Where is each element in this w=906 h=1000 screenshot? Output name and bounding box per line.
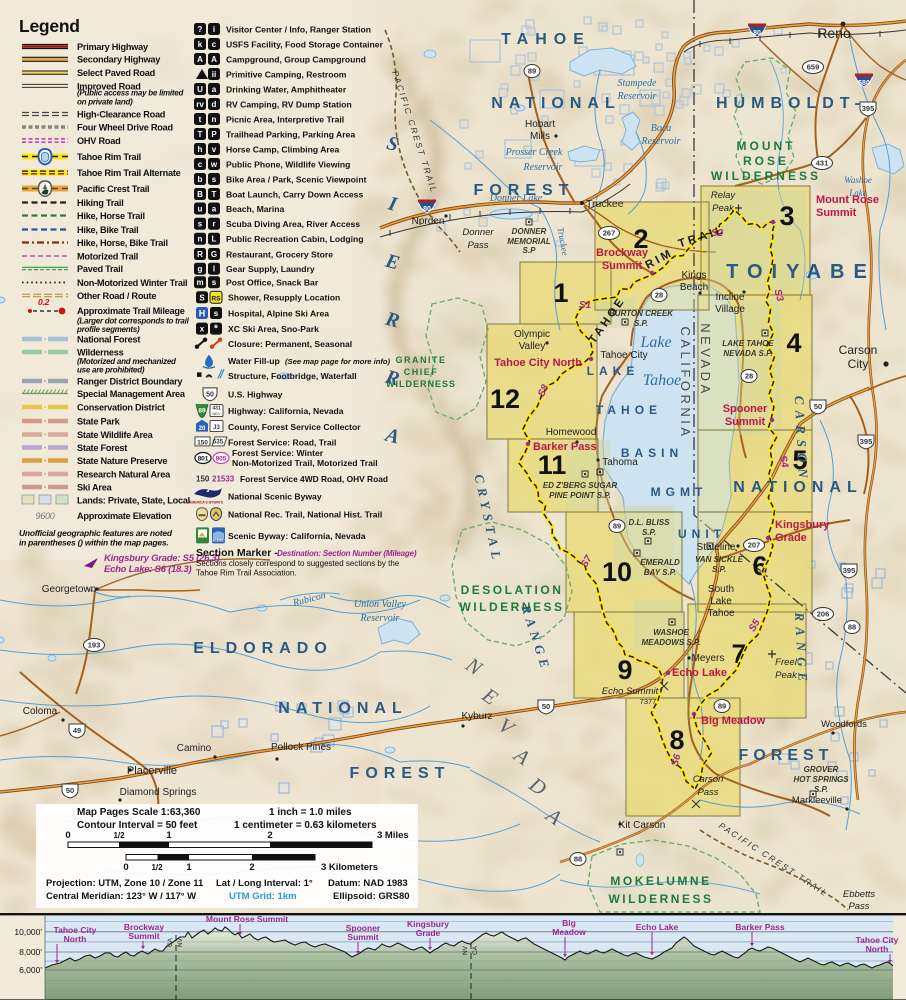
- svg-text:r: r: [212, 220, 215, 229]
- svg-text:(Public access may be limited: (Public access may be limited: [77, 89, 184, 98]
- svg-text:20: 20: [199, 426, 206, 432]
- svg-text:Tahoe City North: Tahoe City North: [494, 357, 582, 369]
- svg-text:k: k: [198, 40, 203, 49]
- svg-text:Structure, Footbridge, Waterfa: Structure, Footbridge, Waterfall: [228, 371, 357, 381]
- svg-text:1: 1: [166, 830, 172, 841]
- svg-text:Barker Pass: Barker Pass: [533, 441, 597, 453]
- svg-text:T: T: [212, 190, 217, 199]
- svg-text:G: G: [211, 250, 217, 259]
- svg-text:Grade: Grade: [775, 532, 807, 544]
- svg-text:g: g: [198, 265, 203, 274]
- svg-text:Secondary Highway: Secondary Highway: [77, 55, 161, 65]
- svg-text:Lake: Lake: [710, 596, 732, 607]
- svg-text:S.P.: S.P.: [712, 565, 726, 574]
- svg-text:Shower, Resupply Location: Shower, Resupply Location: [228, 293, 340, 303]
- svg-text:s: s: [212, 278, 217, 287]
- svg-text:NATIONAL: NATIONAL: [491, 95, 620, 112]
- svg-text:NEVADA: NEVADA: [698, 323, 713, 397]
- svg-text:Meyers: Meyers: [692, 653, 725, 664]
- svg-text:Other Road / Route: Other Road / Route: [77, 291, 156, 301]
- svg-text:11: 11: [538, 450, 567, 480]
- svg-text:s: s: [214, 309, 219, 318]
- svg-text:Truckee: Truckee: [586, 198, 624, 210]
- svg-text:Legend: Legend: [19, 16, 80, 36]
- svg-text:Reservoir: Reservoir: [617, 91, 657, 102]
- svg-text:Carson: Carson: [693, 774, 724, 785]
- svg-text:MEADOWS S.P.: MEADOWS S.P.: [642, 638, 701, 647]
- svg-text:3 Kilometers: 3 Kilometers: [321, 862, 378, 873]
- svg-text:Map Pages Scale 1:63,360: Map Pages Scale 1:63,360: [77, 807, 201, 818]
- svg-text:89: 89: [613, 522, 621, 531]
- svg-text:Hike, Horse Trail: Hike, Horse Trail: [77, 211, 145, 221]
- svg-text:h: h: [198, 145, 203, 154]
- svg-text:Approximate Elevation: Approximate Elevation: [77, 511, 172, 521]
- svg-text:801: 801: [198, 456, 209, 463]
- svg-text:BAY S.P.: BAY S.P.: [644, 568, 676, 577]
- svg-text:NEVADA S.P.: NEVADA S.P.: [723, 349, 772, 358]
- svg-text:x: x: [200, 325, 205, 334]
- svg-text:State Park: State Park: [77, 416, 121, 426]
- svg-text:WILDERNESS: WILDERNESS: [459, 600, 564, 614]
- svg-text:HUMBOLDT-: HUMBOLDT-: [716, 95, 866, 112]
- svg-text:89: 89: [528, 67, 536, 76]
- svg-text:Highway: California, Nevada: Highway: California, Nevada: [228, 406, 344, 416]
- svg-text:RV Camping, RV Dump Station: RV Camping, RV Dump Station: [226, 99, 352, 109]
- svg-text:s: s: [212, 175, 217, 184]
- svg-text:North: North: [64, 934, 87, 944]
- svg-text:Peak: Peak: [775, 670, 798, 681]
- svg-text:Meadow: Meadow: [552, 927, 586, 937]
- svg-text:Pollock Pines: Pollock Pines: [271, 742, 331, 753]
- svg-text:in parentheses () within the m: in parentheses () within the map pages.: [19, 538, 168, 548]
- svg-text:Hike, Horse, Bike Trail: Hike, Horse, Bike Trail: [77, 238, 168, 248]
- svg-text:Unofficial geographic features: Unofficial geographic features are noted: [19, 528, 173, 538]
- svg-text:d: d: [212, 100, 217, 109]
- svg-text:Datum: NAD 1983: Datum: NAD 1983: [328, 878, 408, 889]
- svg-text:Camino: Camino: [177, 743, 212, 754]
- svg-text:267: 267: [603, 229, 616, 238]
- svg-text:City: City: [848, 357, 869, 371]
- svg-text:Water Fill-up: Water Fill-up: [228, 356, 280, 366]
- svg-text:PINE POINT S.P.: PINE POINT S.P.: [549, 491, 611, 500]
- svg-text:Projection: UTM, Zone 10 / Zon: Projection: UTM, Zone 10 / Zone 11: [46, 878, 204, 889]
- svg-text:High-Clearance Road: High-Clearance Road: [77, 109, 165, 119]
- svg-text:B: B: [197, 190, 203, 199]
- svg-text:Forest Service 4WD Road, OHV R: Forest Service 4WD Road, OHV Road: [240, 474, 388, 484]
- svg-text:State Nature Preserve: State Nature Preserve: [77, 456, 167, 466]
- svg-text:Hospital, Alpine Ski Area: Hospital, Alpine Ski Area: [228, 308, 329, 318]
- svg-text:Summit: Summit: [128, 931, 159, 941]
- svg-text:Four Wheel Drive Road: Four Wheel Drive Road: [77, 122, 173, 132]
- svg-text:H: H: [199, 309, 206, 319]
- svg-text:Summit: Summit: [816, 207, 857, 219]
- svg-text:Freel: Freel: [775, 657, 798, 668]
- svg-text:Forest Service: Road, Trail: Forest Service: Road, Trail: [228, 437, 336, 447]
- svg-text:National Rec. Trail, National: National Rec. Trail, National Hist. Trai…: [228, 510, 382, 520]
- svg-text:4: 4: [786, 328, 801, 358]
- svg-text:Bike Area / Park, Scenic Viewp: Bike Area / Park, Scenic Viewpoint: [226, 174, 367, 184]
- svg-text:a: a: [212, 85, 217, 94]
- svg-text:North: North: [866, 944, 889, 954]
- svg-text:S.P.: S.P.: [814, 785, 828, 794]
- svg-text:Markleeville: Markleeville: [792, 795, 842, 806]
- svg-text:Motorized Trail: Motorized Trail: [77, 251, 138, 261]
- svg-text:Hike, Bike Trail: Hike, Bike Trail: [77, 225, 138, 235]
- svg-text:A: A: [211, 55, 217, 64]
- svg-text:Prosser Creek: Prosser Creek: [505, 147, 563, 158]
- svg-text:Stampede: Stampede: [618, 78, 657, 89]
- svg-text:A: A: [197, 55, 203, 64]
- svg-text:Destination: Section Number (M: Destination: Section Number (Mileage): [277, 549, 417, 558]
- svg-text:Coloma: Coloma: [23, 706, 58, 717]
- svg-text:Primitive Camping, Restroom: Primitive Camping, Restroom: [226, 69, 347, 79]
- svg-text:Echo Lake: S6 (18.3): Echo Lake: S6 (18.3): [104, 564, 191, 575]
- svg-text:ELDORADO: ELDORADO: [193, 640, 333, 657]
- svg-text:Kingsbury: Kingsbury: [775, 519, 830, 531]
- svg-text:Gear Supply, Laundry: Gear Supply, Laundry: [226, 264, 315, 274]
- svg-text:7377: 7377: [640, 697, 657, 706]
- svg-text:Scenic Byway: California, Neva: Scenic Byway: California, Nevada: [228, 531, 366, 541]
- svg-text:Washoe: Washoe: [844, 175, 872, 185]
- svg-text:LAKE: LAKE: [587, 364, 640, 378]
- svg-text:Visitor Center / Info, Ranger: Visitor Center / Info, Ranger Station: [226, 24, 371, 34]
- svg-text:Grade: Grade: [416, 928, 441, 938]
- svg-text:Union Valley: Union Valley: [354, 599, 406, 610]
- svg-text:0.2: 0.2: [38, 297, 50, 307]
- svg-text:805: 805: [216, 456, 227, 463]
- svg-text:Pass: Pass: [467, 240, 488, 251]
- svg-text:National Scenic Byway: National Scenic Byway: [228, 491, 322, 501]
- svg-text:t: t: [199, 115, 202, 124]
- svg-text:Georgetown: Georgetown: [42, 584, 96, 595]
- svg-text:8,000': 8,000': [19, 947, 42, 957]
- svg-text:Paved Trail: Paved Trail: [77, 264, 123, 274]
- svg-text:Beach, Marina: Beach, Marina: [226, 204, 284, 214]
- svg-text:12: 12: [490, 384, 520, 414]
- svg-text:Reno: Reno: [817, 25, 851, 41]
- svg-text:Kyburz: Kyburz: [461, 711, 492, 722]
- svg-text:Lat / Long Interval: 1°: Lat / Long Interval: 1°: [216, 878, 313, 889]
- svg-text:v: v: [212, 145, 217, 154]
- svg-text:AMERICA’S BYWAYS: AMERICA’S BYWAYS: [189, 501, 224, 505]
- svg-text:Reservoir: Reservoir: [360, 613, 400, 624]
- svg-text:Donner Lake: Donner Lake: [489, 193, 543, 204]
- svg-text:1/2: 1/2: [113, 831, 125, 840]
- svg-text:WASHOE: WASHOE: [653, 628, 689, 637]
- svg-text:Mills: Mills: [530, 131, 550, 142]
- svg-text:J3: J3: [213, 425, 220, 431]
- svg-text:Forest Service: Winter: Forest Service: Winter: [232, 448, 324, 458]
- svg-text:BURTON CREEK: BURTON CREEK: [609, 309, 674, 318]
- svg-text:ii: ii: [212, 70, 216, 79]
- svg-text:Public Phone, Wildlife Viewing: Public Phone, Wildlife Viewing: [226, 159, 350, 169]
- svg-text:88: 88: [848, 623, 856, 632]
- svg-text:Scuba Diving Area, River Acces: Scuba Diving Area, River Access: [226, 219, 360, 229]
- svg-text:2: 2: [267, 830, 272, 841]
- svg-text:n: n: [212, 115, 217, 124]
- svg-text:S: S: [199, 293, 205, 302]
- svg-text:50: 50: [542, 702, 550, 711]
- svg-text:U.S. Highway: U.S. Highway: [228, 389, 283, 399]
- svg-text:ED Z'BERG SUGAR: ED Z'BERG SUGAR: [543, 481, 618, 490]
- svg-text:n: n: [198, 235, 203, 244]
- svg-text:TOIYABE: TOIYABE: [726, 261, 876, 283]
- svg-text:TAHOE: TAHOE: [596, 403, 662, 417]
- svg-text:Village: Village: [715, 304, 745, 315]
- svg-text:1/2: 1/2: [151, 863, 163, 872]
- svg-text:3: 3: [779, 201, 794, 231]
- svg-text:Big Meadow: Big Meadow: [701, 715, 766, 727]
- svg-text:National Forest: National Forest: [77, 334, 140, 344]
- svg-text:County, Forest Service Collect: County, Forest Service Collector: [228, 422, 361, 432]
- svg-text:3 Miles: 3 Miles: [377, 830, 409, 841]
- svg-text:Tahoma: Tahoma: [602, 457, 638, 468]
- svg-text:Lands: Private, State, Local: Lands: Private, State, Local: [77, 496, 190, 506]
- svg-text:s: s: [198, 220, 203, 229]
- svg-text:Mount Rose: Mount Rose: [816, 194, 879, 206]
- svg-text:RS: RS: [211, 295, 221, 302]
- svg-text:395: 395: [843, 566, 856, 575]
- svg-text:WILDERNESS: WILDERNESS: [711, 169, 821, 183]
- svg-text:rv: rv: [196, 100, 204, 109]
- svg-text:Spooner: Spooner: [723, 403, 768, 415]
- svg-text:Primary Highway: Primary Highway: [77, 42, 149, 52]
- svg-text:Brockway: Brockway: [596, 247, 649, 259]
- svg-text:State Forest: State Forest: [77, 443, 127, 453]
- svg-text:Hobart: Hobart: [525, 119, 555, 130]
- svg-text:LAKE TAHOE: LAKE TAHOE: [722, 339, 774, 348]
- svg-text:Pass: Pass: [697, 787, 718, 798]
- svg-text:L: L: [212, 235, 217, 244]
- svg-text:Picnic Area, Interpretive Trai: Picnic Area, Interpretive Trail: [226, 114, 344, 124]
- svg-text:Summit: Summit: [725, 416, 766, 428]
- svg-text:Summit: Summit: [347, 932, 378, 942]
- svg-text:Kings: Kings: [681, 270, 706, 281]
- svg-text:Placerville: Placerville: [127, 765, 177, 777]
- svg-text:89: 89: [718, 702, 726, 711]
- svg-text:S.P.: S.P.: [634, 319, 648, 328]
- svg-text:Contour Interval = 50 feet: Contour Interval = 50 feet: [77, 820, 198, 831]
- svg-text:Stateline: Stateline: [697, 542, 736, 553]
- svg-text:0: 0: [65, 830, 70, 841]
- svg-text:NEV: NEV: [212, 411, 221, 416]
- svg-text:UTM Grid: 1km: UTM Grid: 1km: [229, 891, 297, 902]
- svg-text:S1: S1: [579, 300, 592, 311]
- svg-text:Barker Pass: Barker Pass: [735, 922, 784, 932]
- svg-text:1 inch = 1.0 miles: 1 inch = 1.0 miles: [269, 807, 352, 818]
- svg-text:Diamond Springs: Diamond Springs: [120, 787, 197, 798]
- svg-text:Non-Motorized Winter Trail: Non-Motorized Winter Trail: [77, 278, 187, 288]
- svg-text:Kit Carson: Kit Carson: [619, 820, 666, 831]
- svg-text:Public Recreation Cabin, Lodgi: Public Recreation Cabin, Lodging: [226, 234, 364, 244]
- svg-text:Hiking Trail: Hiking Trail: [77, 198, 124, 208]
- svg-text:395: 395: [860, 437, 873, 446]
- svg-text:Trailhead Parking, Parking Are: Trailhead Parking, Parking Area: [226, 129, 355, 139]
- svg-text:c: c: [198, 160, 203, 169]
- svg-text:431: 431: [816, 159, 829, 168]
- svg-text:Beach: Beach: [680, 282, 708, 293]
- svg-text:S.P: S.P: [523, 246, 537, 255]
- svg-text:Restaurant, Grocery Store: Restaurant, Grocery Store: [226, 249, 333, 259]
- svg-text:193: 193: [88, 641, 101, 650]
- svg-text:6,000': 6,000': [19, 965, 42, 975]
- svg-text:T: T: [198, 130, 203, 139]
- svg-text:Woodfords: Woodfords: [821, 719, 867, 730]
- svg-text:Relay: Relay: [711, 190, 737, 201]
- svg-text:Lake: Lake: [639, 334, 671, 351]
- svg-text:Ellipsoid: GRS80: Ellipsoid: GRS80: [333, 891, 410, 902]
- svg-text:NV: NV: [462, 945, 469, 955]
- svg-text:DONNER: DONNER: [512, 227, 547, 236]
- svg-text:150: 150: [196, 475, 210, 484]
- svg-text:10: 10: [602, 557, 632, 587]
- svg-text:Reservoir: Reservoir: [641, 136, 681, 147]
- svg-text:S.P.: S.P.: [642, 528, 656, 537]
- svg-text:Research Natural Area: Research Natural Area: [77, 469, 171, 479]
- svg-text:S2: S2: [711, 228, 724, 239]
- svg-text:1 centimeter = 0.63 kilometers: 1 centimeter = 0.63 kilometers: [234, 820, 377, 831]
- svg-text:m: m: [196, 278, 203, 287]
- svg-text:Summit: Summit: [602, 260, 643, 272]
- svg-text:Drinking Water, Amphitheater: Drinking Water, Amphitheater: [226, 84, 347, 94]
- svg-text:8: 8: [669, 725, 684, 755]
- svg-text:80: 80: [753, 30, 761, 37]
- svg-text:2: 2: [249, 862, 254, 873]
- svg-text:MEMORIAL: MEMORIAL: [507, 237, 551, 246]
- svg-text:9: 9: [617, 655, 632, 685]
- svg-text:Non-Motorized Trail, Motorized: Non-Motorized Trail, Motorized Trail: [232, 458, 378, 468]
- svg-text:Carson: Carson: [839, 343, 878, 357]
- svg-text:150: 150: [197, 439, 208, 446]
- svg-text:89: 89: [198, 408, 206, 415]
- svg-text:1: 1: [553, 278, 568, 308]
- svg-text:88: 88: [574, 855, 582, 864]
- svg-text:South: South: [708, 584, 734, 595]
- svg-text:P: P: [211, 130, 217, 139]
- svg-text:Post Office, Snack Bar: Post Office, Snack Bar: [226, 278, 319, 288]
- svg-text:Incline: Incline: [716, 292, 745, 303]
- svg-text:50: 50: [66, 786, 74, 795]
- svg-text:Horse Camp, Climbing Area: Horse Camp, Climbing Area: [226, 144, 340, 154]
- svg-text:28: 28: [655, 291, 663, 300]
- svg-text:EMERALD: EMERALD: [640, 558, 680, 567]
- svg-text:Ski Area: Ski Area: [77, 482, 113, 492]
- svg-text:use are prohibited): use are prohibited): [77, 366, 145, 375]
- svg-text:580: 580: [858, 80, 870, 87]
- svg-text:Tahoe: Tahoe: [643, 372, 682, 389]
- svg-text:Wilderness: Wilderness: [77, 347, 124, 357]
- svg-text:(See map page for more info): (See map page for more info): [285, 357, 391, 366]
- svg-text:28: 28: [745, 372, 753, 381]
- svg-text:U: U: [197, 85, 203, 94]
- svg-text:1: 1: [186, 862, 192, 873]
- svg-text:FOREST: FOREST: [350, 765, 451, 782]
- svg-text:OHV Road: OHV Road: [77, 136, 120, 146]
- svg-text:Tahoe Rim Trail Association.: Tahoe Rim Trail Association.: [196, 569, 297, 578]
- svg-text:DESOLATION: DESOLATION: [461, 583, 564, 597]
- svg-text:Boat Launch, Carry Down Access: Boat Launch, Carry Down Access: [226, 189, 363, 199]
- svg-text:0: 0: [123, 862, 128, 873]
- svg-text:Boca: Boca: [651, 123, 672, 134]
- svg-text:Campground, Group Campground: Campground, Group Campground: [226, 54, 366, 64]
- svg-text:i: i: [213, 25, 215, 34]
- svg-text:635: 635: [213, 438, 224, 445]
- svg-text:SCENIC: SCENIC: [212, 538, 225, 542]
- svg-text:NATIONAL: NATIONAL: [278, 700, 407, 717]
- svg-text:50: 50: [814, 402, 822, 411]
- svg-text:u: u: [198, 205, 203, 214]
- svg-text:Reservoir: Reservoir: [523, 162, 563, 173]
- svg-text:10,000': 10,000': [14, 927, 42, 937]
- svg-text:*: *: [214, 324, 218, 335]
- svg-text:?: ?: [198, 25, 203, 34]
- svg-text:Closure: Permanent, Seasonal: Closure: Permanent, Seasonal: [228, 339, 352, 349]
- svg-text:MOKELUMNE: MOKELUMNE: [610, 874, 711, 888]
- svg-text:Central Meridian: 123° W / 117: Central Meridian: 123° W / 117° W: [46, 891, 196, 902]
- svg-text:VAN SICKLE: VAN SICKLE: [695, 555, 744, 564]
- svg-text:CA: CA: [167, 937, 174, 947]
- svg-text:50: 50: [206, 391, 214, 398]
- svg-text:21533: 21533: [212, 475, 235, 484]
- svg-text:TAHOE: TAHOE: [501, 31, 591, 48]
- svg-text:UNIT: UNIT: [678, 527, 726, 541]
- svg-text:USFS Facility, Food Storage Co: USFS Facility, Food Storage Container: [226, 39, 384, 49]
- svg-text:D.L. BLISS: D.L. BLISS: [629, 518, 671, 527]
- svg-text:Section Marker -: Section Marker -: [196, 547, 278, 559]
- svg-text:Ebbetts: Ebbetts: [843, 889, 875, 900]
- svg-text:Olympic: Olympic: [514, 329, 550, 340]
- svg-text:HOT SPRINGS: HOT SPRINGS: [793, 775, 849, 784]
- svg-text:State Wildlife Area: State Wildlife Area: [77, 430, 154, 440]
- svg-text:NV: NV: [177, 937, 184, 947]
- svg-text:Sections closely correspond to: Sections closely correspond to suggested…: [196, 559, 400, 568]
- svg-text:XC Ski Area, Sno-Park: XC Ski Area, Sno-Park: [228, 324, 319, 334]
- svg-text:ROSE: ROSE: [743, 154, 789, 168]
- svg-text:R: R: [197, 250, 203, 259]
- svg-text:Conservation District: Conservation District: [77, 402, 165, 412]
- svg-text:Tahoe: Tahoe: [707, 608, 735, 619]
- svg-text:profile segments): profile segments): [76, 325, 140, 334]
- svg-text:206: 206: [817, 610, 830, 619]
- svg-text:Select Paved Road: Select Paved Road: [77, 68, 155, 78]
- svg-text:a: a: [212, 205, 217, 214]
- svg-text:Pass: Pass: [848, 901, 869, 912]
- svg-text:Tahoe City: Tahoe City: [600, 350, 647, 361]
- svg-text:Donner: Donner: [462, 227, 494, 238]
- svg-text:9600: 9600: [35, 511, 54, 521]
- svg-text:207: 207: [748, 541, 761, 550]
- svg-text:Echo Lake: Echo Lake: [636, 922, 679, 932]
- svg-text:Mount Rose Summit: Mount Rose Summit: [206, 914, 288, 924]
- svg-text:Ranger District Boundary: Ranger District Boundary: [77, 376, 183, 386]
- svg-text:Pacific Crest Trail: Pacific Crest Trail: [77, 184, 149, 194]
- svg-text:Homewood: Homewood: [546, 427, 597, 438]
- svg-text:Echo Lake: Echo Lake: [672, 667, 727, 679]
- svg-text:Tahoe Rim Trail: Tahoe Rim Trail: [77, 152, 141, 162]
- svg-text:Echo Summit: Echo Summit: [602, 686, 659, 697]
- svg-text:c: c: [212, 40, 217, 49]
- svg-text:GROVER: GROVER: [804, 765, 839, 774]
- svg-text:on private land): on private land): [77, 98, 133, 107]
- svg-text:Approximate Trail Mileage: Approximate Trail Mileage: [77, 306, 185, 316]
- svg-text:659: 659: [807, 63, 820, 72]
- svg-text:CA: CA: [472, 945, 479, 955]
- svg-text:b: b: [198, 175, 203, 184]
- svg-text:w: w: [210, 160, 218, 169]
- svg-text:49: 49: [73, 726, 81, 735]
- svg-text:S4: S4: [777, 455, 790, 469]
- svg-text:Special Management Area: Special Management Area: [77, 389, 186, 399]
